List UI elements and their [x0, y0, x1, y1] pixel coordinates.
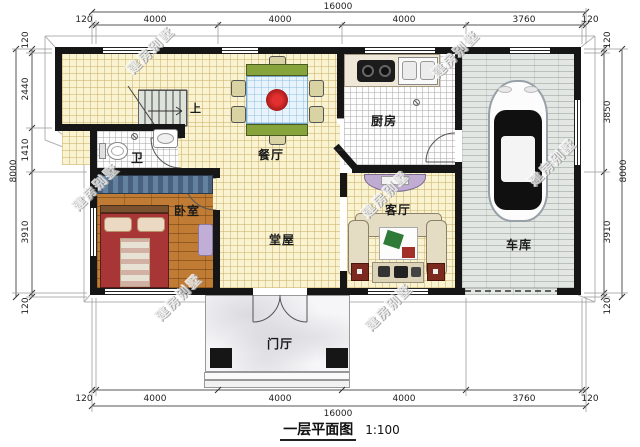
dim-left-total: 8000: [9, 149, 19, 193]
bed-headboard: [100, 205, 169, 213]
room-label-porch: 门厅: [267, 335, 293, 352]
car-headlight: [524, 86, 538, 93]
floor-plan: 厨房 餐厅 卫 卧室 堂屋 客厅 车库 门厅 上 16000 120 4000 …: [0, 0, 640, 447]
window: [365, 47, 435, 54]
wall-segment: [157, 47, 222, 54]
dim-bottom-total: 16000: [316, 409, 360, 419]
drawing-scale: 1:100: [365, 423, 400, 437]
drawing-title: 一层平面图: [280, 422, 356, 441]
dim-left-seg: 1410: [21, 128, 31, 172]
dim-bottom-seg: 4000: [133, 394, 177, 404]
washbasin-bowl: [157, 133, 174, 144]
dim-left-seg: 120: [21, 284, 31, 328]
window: [510, 47, 550, 54]
dining-table-end: [246, 64, 308, 76]
dining-chair: [231, 80, 246, 97]
window: [574, 100, 581, 165]
window: [222, 47, 258, 54]
pillow: [137, 217, 165, 232]
table-flower: [266, 89, 288, 111]
wall-segment: [213, 210, 220, 288]
porch-column: [210, 348, 232, 368]
room-label-garage: 车库: [506, 236, 532, 253]
wall-segment: [455, 162, 462, 288]
dim-top-seg: 4000: [258, 15, 302, 25]
floor-drain: [413, 99, 420, 106]
dim-bottom-seg: 120: [62, 394, 106, 404]
dim-right-seg: 3850: [603, 90, 613, 134]
wall-segment: [178, 124, 185, 138]
dining-table-end: [246, 124, 308, 136]
dim-top-seg: 3760: [502, 15, 546, 25]
wall-segment: [340, 271, 347, 288]
wall-segment: [557, 288, 581, 295]
wall-segment: [574, 165, 581, 295]
end-table-detail: [357, 269, 362, 274]
dim-left-seg: 2440: [21, 67, 31, 111]
dim-right-seg: 3910: [603, 210, 613, 254]
table-item: [378, 266, 390, 277]
rug-pattern: [402, 247, 415, 258]
dim-bottom-seg: 4000: [382, 394, 426, 404]
burner: [379, 65, 391, 77]
dim-top-seg: 4000: [382, 15, 426, 25]
wall-segment: [213, 168, 220, 178]
dim-top-seg: 4000: [133, 15, 177, 25]
dim-bottom-seg: 4000: [258, 394, 302, 404]
dim-right-total: 8000: [619, 149, 629, 193]
room-label-hall: 堂屋: [269, 231, 295, 248]
dim-right-seg: 120: [603, 18, 613, 62]
porch-column: [326, 348, 348, 368]
pillow: [104, 217, 132, 232]
burner: [362, 65, 374, 77]
wall-segment: [428, 288, 465, 295]
wall-segment: [307, 288, 368, 295]
sink-basin: [402, 61, 417, 80]
dining-chair: [309, 106, 324, 123]
car-headlight: [498, 86, 512, 93]
dining-chair: [309, 80, 324, 97]
table-item: [411, 267, 421, 277]
dim-bottom-seg: 120: [568, 394, 612, 404]
toilet-tank: [99, 143, 106, 159]
dim-right-seg: 120: [603, 284, 613, 328]
wall-segment: [337, 47, 344, 118]
floor-drain: [131, 133, 138, 140]
wall-segment: [55, 47, 103, 54]
room-label-living: 客厅: [385, 201, 411, 218]
stairs-up-label: 上: [190, 100, 202, 116]
wall-segment: [55, 47, 62, 131]
room-label-kitchen: 厨房: [371, 112, 397, 129]
table-item: [394, 266, 408, 278]
room-label-bedroom: 卧室: [174, 202, 200, 219]
wall-segment: [340, 173, 347, 197]
room-label-dining: 餐厅: [258, 146, 284, 163]
dim-bottom-seg: 3760: [502, 394, 546, 404]
wall-segment: [258, 47, 365, 54]
nightstand: [198, 224, 213, 256]
room-label-bath: 卫: [131, 149, 144, 166]
toilet-bowl: [111, 146, 124, 156]
end-table-detail: [433, 269, 438, 274]
dim-top-total: 16000: [316, 2, 360, 12]
wall-segment: [90, 288, 105, 295]
bed-blanket: [120, 238, 150, 287]
wall-segment: [574, 47, 581, 100]
dim-left-seg: 3910: [21, 210, 31, 254]
dim-left-seg: 120: [21, 18, 31, 62]
dining-chair: [231, 106, 246, 123]
window: [90, 208, 97, 256]
dim-top-seg: 120: [62, 15, 106, 25]
drawing-title-block: 一层平面图1:100: [240, 419, 440, 439]
